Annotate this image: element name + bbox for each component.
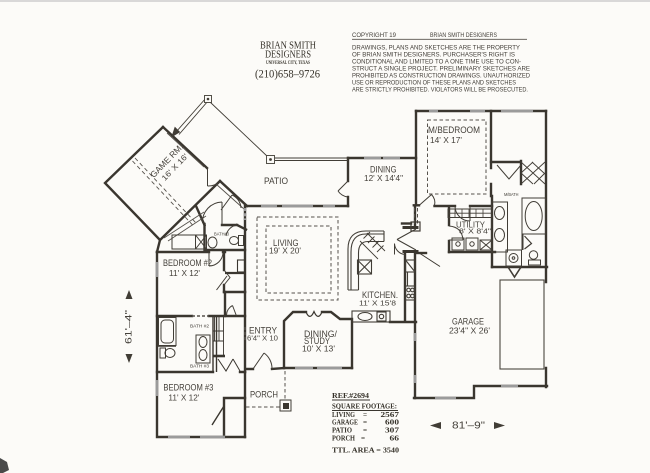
svg-text:UNIVERSAL CITY, TEXAS: UNIVERSAL CITY, TEXAS	[266, 61, 310, 66]
svg-text:PATIO: PATIO	[332, 426, 352, 434]
svg-text:=: =	[361, 434, 365, 442]
svg-text:BATH#3: BATH#3	[214, 232, 229, 238]
svg-text:11' X 12': 11' X 12'	[168, 392, 199, 402]
svg-text:DRAWINGS, PLANS AND SKETCHES A: DRAWINGS, PLANS AND SKETCHES ARE THE PRO…	[352, 45, 520, 52]
svg-text:8' X 8'4": 8' X 8'4"	[459, 227, 491, 236]
svg-text:DESIGNERS: DESIGNERS	[265, 49, 311, 60]
svg-text:PROHIBITED AS CONSTRUCTION DRA: PROHIBITED AS CONSTRUCTION DRAWINGS. UNA…	[352, 73, 531, 80]
svg-text:81'–9": 81'–9"	[452, 421, 486, 432]
svg-text:REF.#2694: REF.#2694	[332, 392, 369, 400]
svg-text:61'–4": 61'–4"	[124, 310, 135, 344]
svg-text:PORCH: PORCH	[250, 390, 278, 401]
svg-text:OF BRIAN SMITH DESIGNERS. PUR: OF BRIAN SMITH DESIGNERS. PURCHASER'S RI…	[352, 52, 515, 59]
svg-text:11' X 15'8: 11' X 15'8	[359, 299, 396, 308]
svg-text:BRIAN SMITH DESIGNERS: BRIAN SMITH DESIGNERS	[430, 32, 497, 39]
svg-text:COPYRIGHT 19: COPYRIGHT 19	[352, 32, 397, 39]
svg-text:=: =	[363, 426, 367, 434]
svg-text:TTL. AREA = 3540: TTL. AREA = 3540	[332, 447, 399, 455]
svg-text:6'4" X 10: 6'4" X 10	[247, 334, 278, 343]
svg-text:CONDITIONAL AND LIMITED TO A O: CONDITIONAL AND LIMITED TO A ONE TIME US…	[352, 59, 521, 66]
svg-text:DINING: DINING	[370, 165, 397, 175]
svg-text:SQUARE FOOTAGE:: SQUARE FOOTAGE:	[332, 403, 397, 411]
svg-text:14' X 17': 14' X 17'	[430, 136, 462, 145]
svg-text:11' X 12': 11' X 12'	[169, 268, 200, 278]
svg-text:66: 66	[390, 434, 400, 442]
svg-text:STRUCT A SINGLE PROJECT. PREL: STRUCT A SINGLE PROJECT. PRELIMINARY SKE…	[352, 66, 530, 73]
svg-text:ARE STRICTLY PROHIBITED. VIOL: ARE STRICTLY PROHIBITED. VIOLATORS WILL …	[352, 87, 528, 94]
svg-text:M/BEDROOM: M/BEDROOM	[428, 125, 480, 135]
svg-text:USE OR REPRODUCTION OF THESE P: USE OR REPRODUCTION OF THESE PLANS AND S…	[352, 80, 516, 87]
svg-text:GARAGE: GARAGE	[452, 317, 484, 327]
svg-text:BATH #3: BATH #3	[190, 364, 209, 370]
svg-text:23'4" X 26': 23'4" X 26'	[449, 327, 491, 336]
svg-text:PORCH: PORCH	[332, 434, 355, 442]
svg-text:12' X 14'4": 12' X 14'4"	[364, 174, 403, 183]
svg-text:PATIO: PATIO	[264, 176, 288, 187]
svg-text:19' X 20': 19' X 20'	[269, 247, 301, 256]
svg-text:BATH #2: BATH #2	[190, 324, 209, 330]
svg-text:(210)658–9726: (210)658–9726	[255, 68, 320, 80]
svg-text:10' X 13': 10' X 13'	[302, 345, 336, 354]
svg-text:307: 307	[385, 426, 400, 434]
svg-text:M/BATH: M/BATH	[504, 192, 519, 198]
